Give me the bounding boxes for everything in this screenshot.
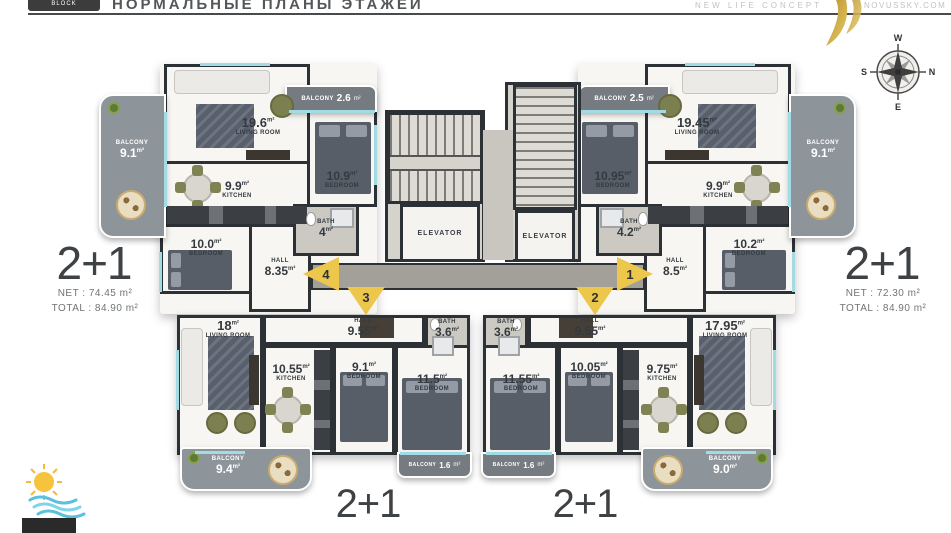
label-bedroom1-bl: 9.1m² BEDROOM <box>335 361 393 381</box>
website-text: NOVUSSKY.COM <box>864 1 946 10</box>
label-hall-tr: HALL 8.5m² <box>647 258 703 278</box>
label-bedroom1-tl: 10.9m² BEDROOM <box>311 170 373 190</box>
tv-console <box>665 150 709 160</box>
novussky-logo-icon <box>822 0 862 48</box>
label-kitchen-tr: 9.9m² KITCHEN <box>690 180 746 200</box>
tv-console <box>246 150 290 160</box>
balcony-table <box>268 455 298 485</box>
label-hall-bl: HALL 9.55m² <box>335 318 391 338</box>
label-bedroom2-bl: 11.5m² BEDROOM <box>398 373 466 393</box>
label-kitchen-bl: 10.55m² KITCHEN <box>263 363 319 383</box>
label-bedroom1-br: 10.05m² BEDROOM <box>560 361 618 381</box>
label-hall-br: HALL 9.55m² <box>562 318 618 338</box>
balcony-small-bl: BALCONY 1.6 m² <box>397 452 472 478</box>
window <box>164 112 167 207</box>
window <box>773 350 776 410</box>
svg-text:N: N <box>929 67 936 77</box>
bed <box>340 372 388 442</box>
armchair <box>206 412 228 434</box>
armchair <box>270 94 294 118</box>
label-bath-tr: BATH 4.2m² <box>603 219 655 239</box>
window <box>788 112 791 207</box>
sun-waves-logo-icon <box>16 456 92 518</box>
stairs-right <box>513 84 577 210</box>
armchair <box>234 412 256 434</box>
summary-left-total: TOTAL : 84.90 m² <box>30 303 160 314</box>
sofa <box>682 70 778 94</box>
tv-console <box>694 355 704 405</box>
summary-bottom-left-type: 2+1 <box>330 482 406 527</box>
window <box>400 452 466 455</box>
svg-text:S: S <box>861 67 867 77</box>
svg-text:W: W <box>894 33 903 43</box>
rug <box>208 336 254 410</box>
summary-right-net: NET : 72.30 m² <box>818 288 948 299</box>
label-balcony-side-tl: BALCONY 9.1m² <box>102 140 162 160</box>
label-bedroom2-br: 11.55m² BEDROOM <box>487 373 555 393</box>
window <box>685 63 755 66</box>
sofa <box>174 70 270 94</box>
balcony-table <box>653 455 683 485</box>
window <box>195 451 245 454</box>
elevator-right: ELEVATOR <box>515 210 575 262</box>
summary-right-type: 2+1 <box>826 236 938 290</box>
block-badge: BLOCK <box>28 0 100 11</box>
label-balcony-main-br: BALCONY 9.0m² <box>695 456 755 476</box>
tv-console <box>249 355 259 405</box>
balcony-top-tr: BALCONY 2.5 m² <box>578 85 670 112</box>
balcony-table <box>116 190 146 220</box>
armchair <box>725 412 747 434</box>
summary-left-type: 2+1 <box>38 236 150 290</box>
kitchen-counter <box>648 206 788 224</box>
label-bath-tl: BATH 4m² <box>300 219 352 239</box>
armchair <box>697 412 719 434</box>
summary-bottom-right-type: 2+1 <box>547 482 623 527</box>
summary-left-net: NET : 74.45 m² <box>30 288 160 299</box>
label-hall-tl: HALL 8.35m² <box>252 258 308 278</box>
window <box>289 110 375 113</box>
window <box>792 252 795 292</box>
plant-icon <box>756 452 768 464</box>
label-balcony-main-bl: BALCONY 9.4m² <box>198 456 258 476</box>
window <box>176 350 179 410</box>
window <box>374 125 377 185</box>
balcony-table <box>806 190 836 220</box>
window <box>200 63 270 66</box>
bed <box>565 372 613 442</box>
elevator-left: ELEVATOR <box>400 204 480 262</box>
rug <box>699 336 745 410</box>
label-bath-br: BATH 3.6m² <box>482 319 530 339</box>
corridor <box>311 263 645 290</box>
kitchen-counter <box>167 206 307 224</box>
header-divider <box>28 13 951 15</box>
logo-footer-box <box>22 518 76 533</box>
core-lobby <box>483 130 513 260</box>
label-balcony-side-tr: BALCONY 9.1m² <box>793 140 853 160</box>
plant-icon <box>108 102 120 114</box>
dining-table <box>642 388 686 432</box>
compass-rose: W N E S <box>858 32 938 112</box>
window <box>580 110 666 113</box>
dining-table <box>266 388 310 432</box>
label-kitchen-br: 9.75m² KITCHEN <box>634 363 690 383</box>
label-living-bl: 18m² LIVING ROOM <box>196 319 260 340</box>
page-title: НОРМАЛЬНЫЕ ПЛАНЫ ЭТАЖЕЙ <box>112 0 424 13</box>
window <box>706 451 756 454</box>
label-bedroom2-tl: 10.0m² BEDROOM <box>176 238 236 258</box>
plant-icon <box>834 102 846 114</box>
window <box>486 452 552 455</box>
label-kitchen-tl: 9.9m² KITCHEN <box>209 180 265 200</box>
shower <box>432 336 454 356</box>
summary-right-total: TOTAL : 84.90 m² <box>818 303 948 314</box>
label-living-tl: 19.6m² LIVING ROOM <box>226 116 290 137</box>
window <box>159 252 162 292</box>
brand-text: NEW LIFE CONCEPT <box>695 1 822 10</box>
label-bath-bl: BATH 3.6m² <box>423 319 471 339</box>
shower <box>498 336 520 356</box>
label-living-tr: 19.45m² LIVING ROOM <box>665 116 729 137</box>
balcony-small-br: BALCONY 1.6 m² <box>481 452 556 478</box>
stairs-left <box>387 112 483 204</box>
balcony-top-tl: BALCONY 2.6 m² <box>285 85 377 112</box>
label-bedroom1-tr: 10.95m² BEDROOM <box>582 170 644 190</box>
label-living-br: 17.95m² LIVING ROOM <box>693 319 757 340</box>
label-bedroom2-tr: 10.2m² BEDROOM <box>719 238 779 258</box>
svg-text:E: E <box>895 102 901 112</box>
